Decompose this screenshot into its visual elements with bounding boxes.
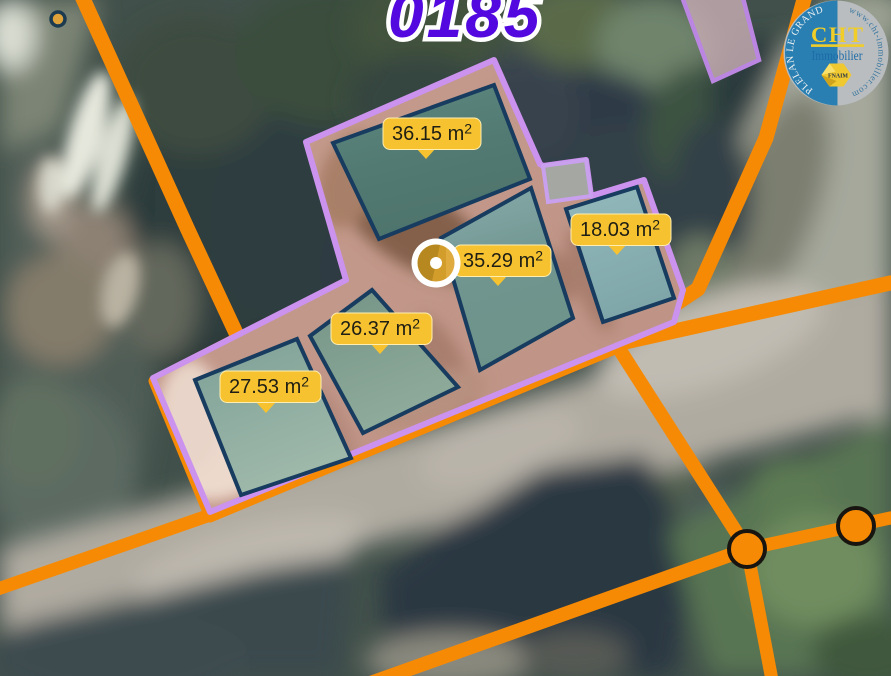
svg-text:0185: 0185: [388, 0, 542, 51]
svg-text:FNAIM: FNAIM: [828, 73, 848, 80]
svg-text:CHT: CHT: [811, 22, 863, 47]
svg-text:Immobilier: Immobilier: [812, 49, 863, 64]
svg-text:26.37 m2: 26.37 m2: [340, 316, 420, 341]
svg-text:18.03 m2: 18.03 m2: [580, 217, 660, 242]
svg-text:35.29 m2: 35.29 m2: [463, 248, 543, 273]
svg-text:27.53 m2: 27.53 m2: [229, 374, 309, 399]
svg-text:36.15 m2: 36.15 m2: [392, 121, 472, 146]
